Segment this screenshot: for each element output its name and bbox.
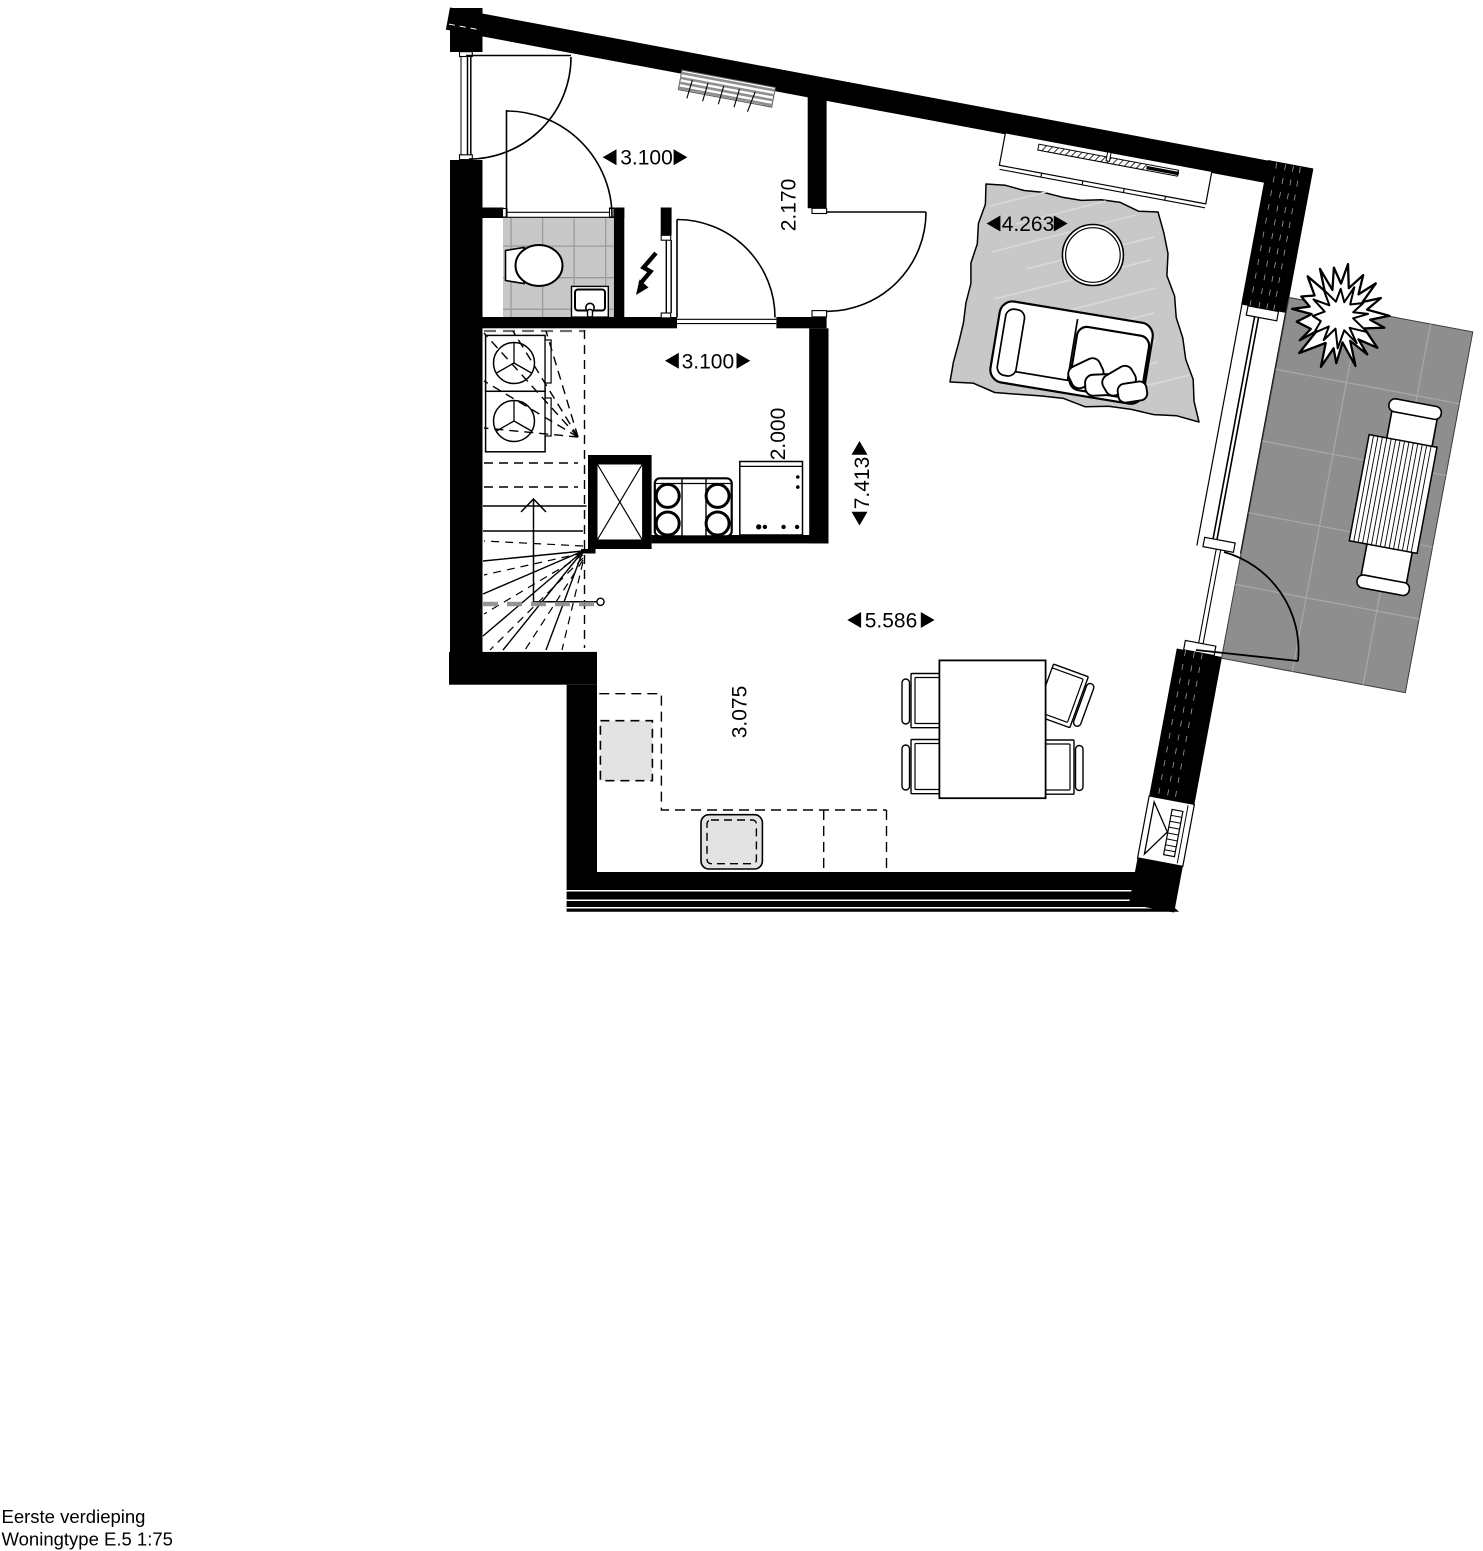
svg-text:3.100: 3.100 [620,147,673,170]
svg-text:2.000: 2.000 [767,408,790,461]
svg-text:7.413: 7.413 [851,457,874,510]
svg-text:3.100: 3.100 [682,350,735,373]
svg-text:4.263: 4.263 [1002,213,1055,236]
svg-text:Eerste verdieping: Eerste verdieping [2,1506,146,1527]
svg-text:Woningtype E.5 1:75: Woningtype E.5 1:75 [2,1528,173,1549]
svg-text:2.170: 2.170 [778,179,801,232]
svg-text:5.586: 5.586 [865,610,918,633]
svg-text:3.075: 3.075 [729,686,752,739]
